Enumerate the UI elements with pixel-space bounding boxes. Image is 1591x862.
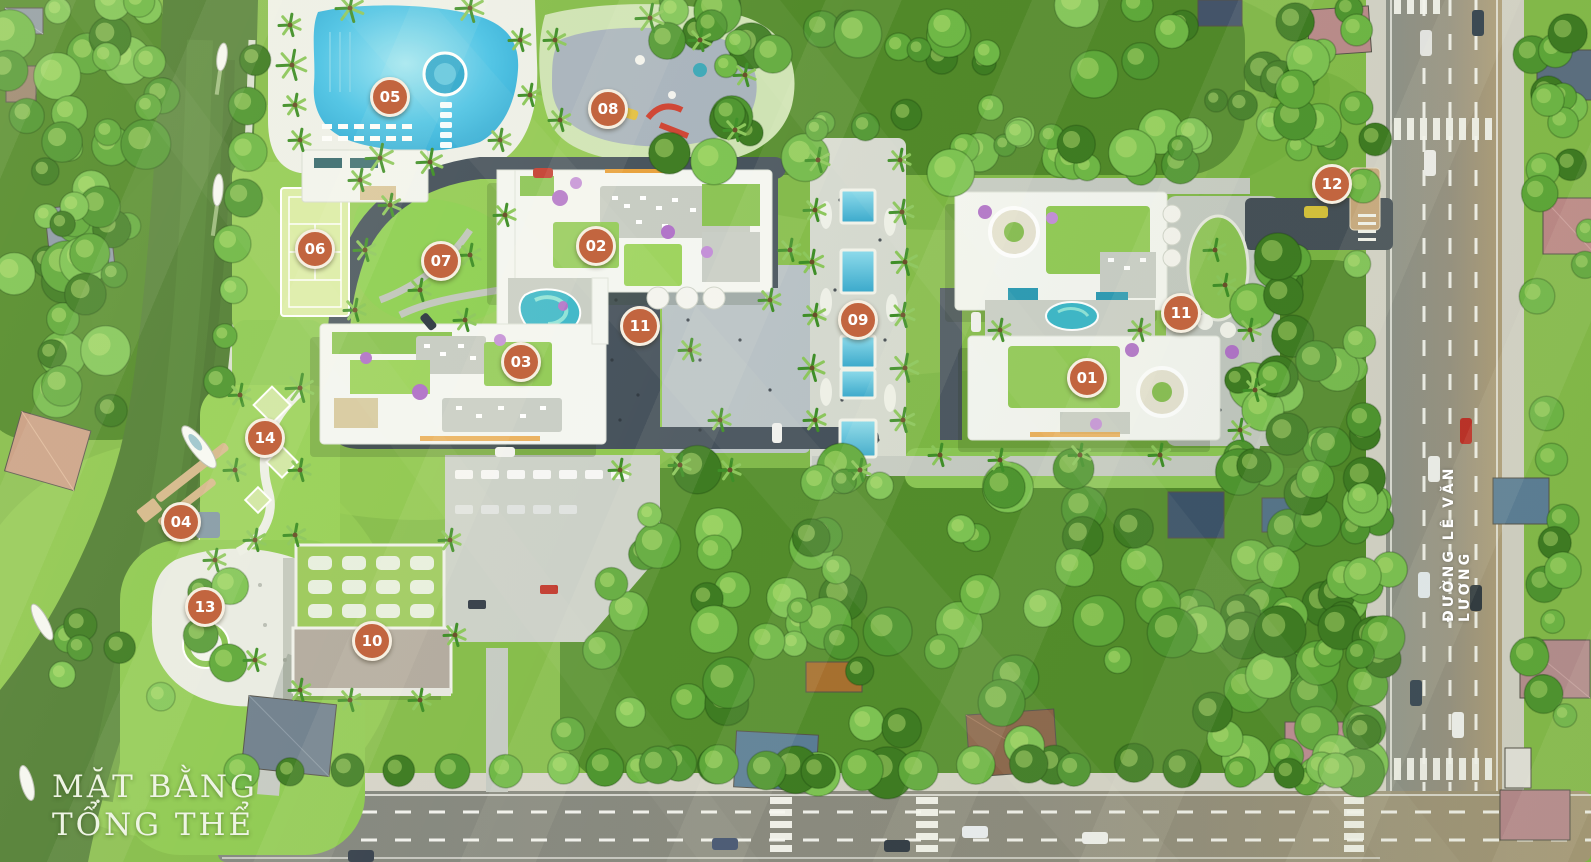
plan-title-line1: MẶT BẰNG [52, 768, 258, 806]
site-marker-12[interactable]: 12 [1312, 164, 1352, 204]
site-marker-02[interactable]: 02 [576, 226, 616, 266]
site-marker-09[interactable]: 09 [838, 300, 878, 340]
plan-title-line2: TỔNG THỂ [52, 806, 258, 844]
site-marker-14[interactable]: 14 [245, 418, 285, 458]
site-marker-11[interactable]: 11 [620, 306, 660, 346]
site-marker-08[interactable]: 08 [588, 89, 628, 129]
site-marker-07[interactable]: 07 [421, 241, 461, 281]
master-plan-scene: MẶT BẰNG TỔNG THỂ ĐƯỜNG LÊ VĂN LƯƠNG 010… [0, 0, 1591, 862]
site-plan-artwork [0, 0, 1591, 862]
site-marker-03[interactable]: 03 [501, 342, 541, 382]
site-marker-10[interactable]: 10 [352, 621, 392, 661]
site-marker-04[interactable]: 04 [161, 502, 201, 542]
site-marker-13[interactable]: 13 [185, 587, 225, 627]
site-marker-01[interactable]: 01 [1067, 358, 1107, 398]
site-marker-05[interactable]: 05 [370, 77, 410, 117]
site-marker-06[interactable]: 06 [295, 229, 335, 269]
site-marker-11[interactable]: 11 [1161, 293, 1201, 333]
street-name-label: ĐƯỜNG LÊ VĂN LƯƠNG [1441, 422, 1473, 622]
plan-title: MẶT BẰNG TỔNG THỂ [52, 768, 258, 844]
